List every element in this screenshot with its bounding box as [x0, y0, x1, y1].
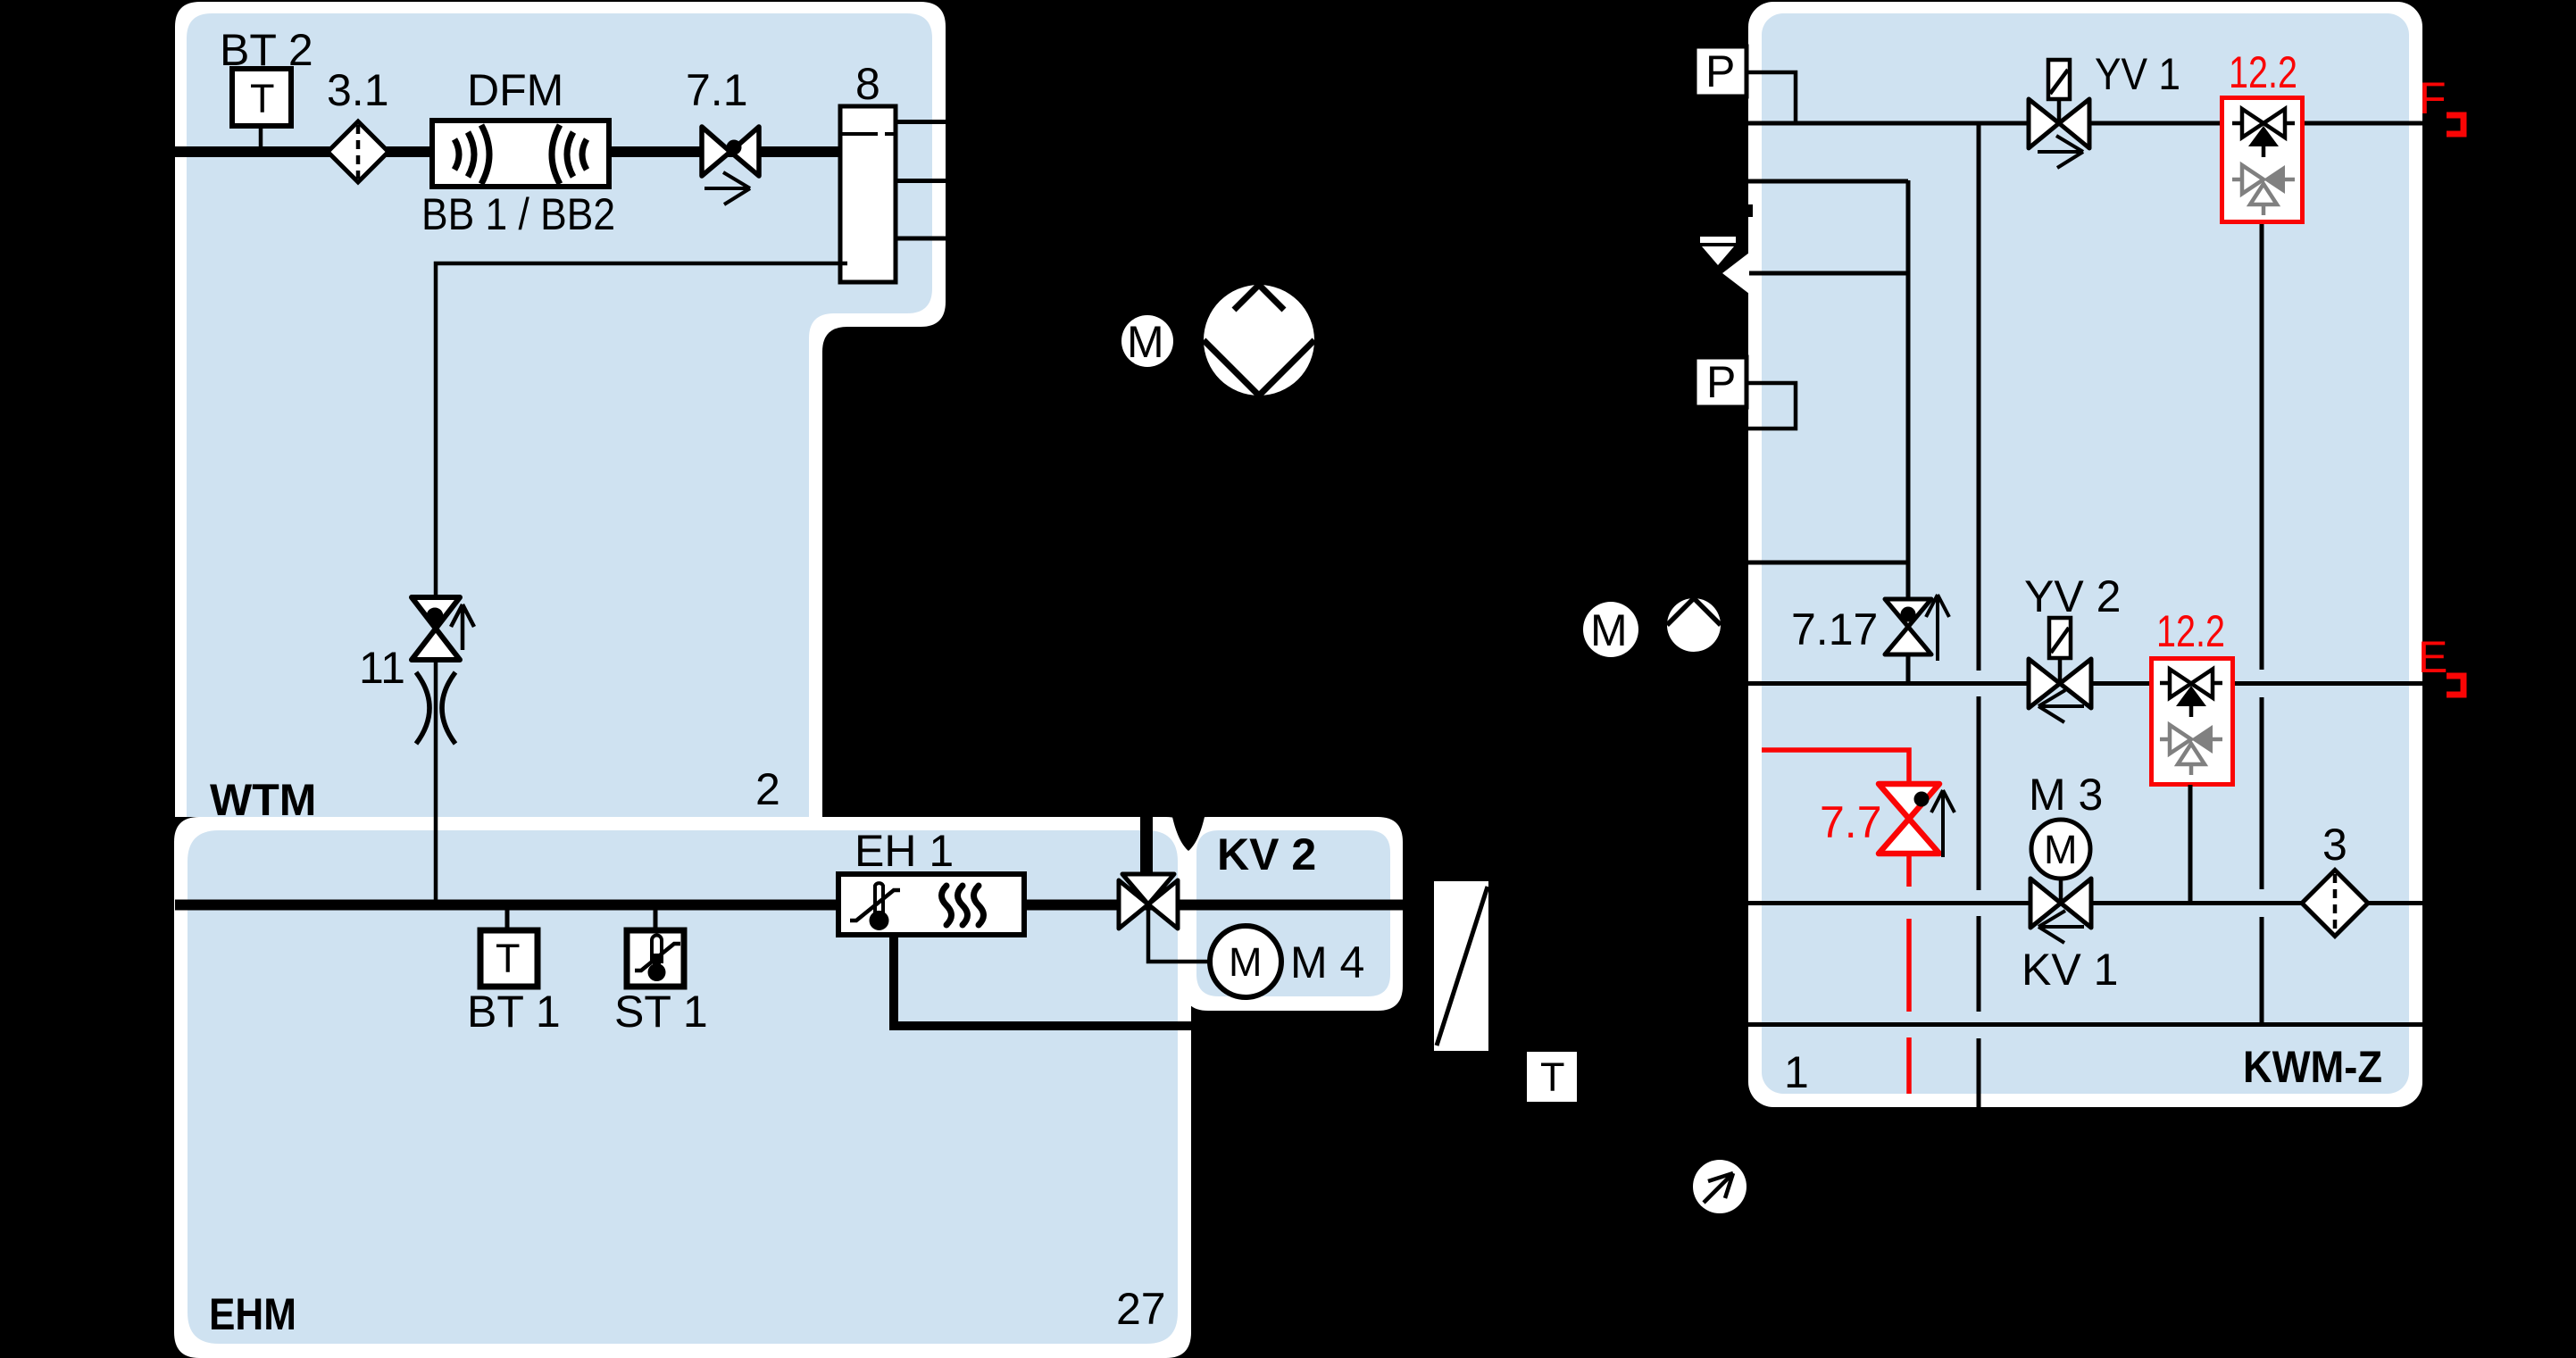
svg-text:EH 1: EH 1 — [854, 826, 954, 876]
svg-text:BT 2: BT 2 — [220, 25, 313, 75]
svg-text:P: P — [1705, 46, 1735, 96]
svg-text:M 3: M 3 — [2029, 770, 2103, 820]
svg-text:M 4: M 4 — [1290, 937, 1364, 987]
svg-text:KWM-Z: KWM-Z — [2243, 1042, 2382, 1092]
svg-text:KV 2: KV 2 — [1217, 829, 1316, 879]
svg-text:3: 3 — [2322, 820, 2347, 870]
svg-text:M: M — [1590, 605, 1628, 655]
svg-text:12.2: 12.2 — [2229, 47, 2297, 97]
svg-text:7.17: 7.17 — [1791, 604, 1878, 654]
svg-text:M: M — [2044, 827, 2078, 872]
svg-text:M: M — [1229, 939, 1263, 985]
svg-text:F: F — [2419, 73, 2447, 123]
svg-text:T: T — [1540, 1054, 1565, 1100]
svg-text:1: 1 — [1784, 1047, 1809, 1097]
svg-text:EHM: EHM — [209, 1289, 296, 1339]
svg-text:3.1: 3.1 — [327, 65, 389, 115]
svg-text:YV 2: YV 2 — [2024, 571, 2121, 621]
svg-text:WTM: WTM — [210, 775, 316, 825]
svg-text:11: 11 — [359, 643, 405, 693]
svg-text:BB 1 / BB2: BB 1 / BB2 — [421, 189, 615, 239]
svg-text:27: 27 — [1116, 1284, 1166, 1334]
svg-text:KV 1: KV 1 — [2022, 945, 2118, 995]
svg-text:P: P — [1706, 357, 1736, 407]
svg-text:BT 1: BT 1 — [467, 987, 561, 1037]
svg-text:E: E — [2418, 632, 2447, 682]
svg-text:12.2: 12.2 — [2156, 606, 2225, 656]
svg-text:YV 1: YV 1 — [2095, 49, 2180, 99]
svg-text:DFM: DFM — [467, 65, 563, 115]
svg-text:7.7: 7.7 — [1820, 797, 1882, 847]
svg-text:8: 8 — [855, 59, 880, 109]
svg-text:T: T — [496, 936, 521, 981]
svg-text:ST 1: ST 1 — [614, 987, 708, 1037]
svg-text:7.1: 7.1 — [686, 65, 748, 115]
svg-text:M: M — [1127, 317, 1164, 367]
svg-text:T: T — [250, 76, 275, 121]
svg-text:2: 2 — [755, 764, 780, 814]
